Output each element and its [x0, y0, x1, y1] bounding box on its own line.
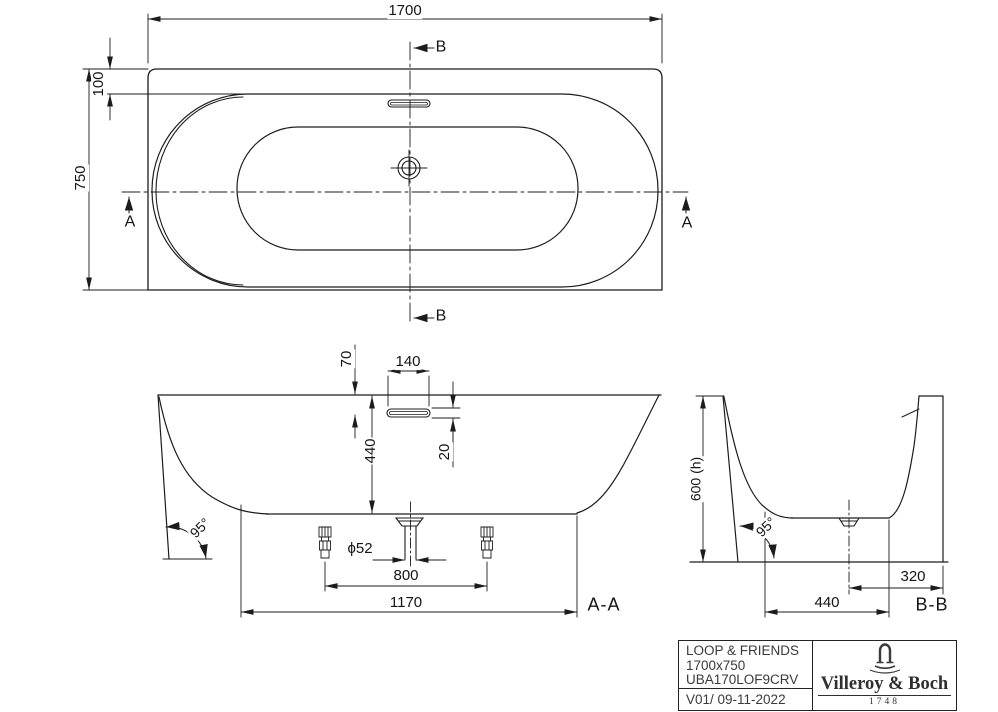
section-title-bb: B-B: [914, 596, 949, 615]
brand-year: 1748: [813, 697, 956, 707]
section-label-a-left: A: [124, 215, 137, 232]
overflow-section-aa: [387, 409, 430, 417]
section-label-b-top: B: [435, 40, 448, 57]
dim-label-100: 100: [91, 70, 107, 97]
title-block-divider: [679, 688, 812, 689]
product-name: LOOP & FRIENDS: [686, 644, 812, 659]
dim-label-600h: 600 (h): [689, 456, 704, 502]
dim-label-20: 20: [437, 443, 453, 462]
dim-label-750: 750: [73, 164, 89, 191]
brand-name: Villeroy & Boch: [818, 675, 951, 696]
dim-label-1170: 1170: [389, 595, 423, 611]
dim-label-1700: 1700: [387, 3, 422, 19]
dim-label-440-bb: 440: [813, 595, 840, 611]
top-view: [83, 14, 688, 322]
article-number: UBA170LOF9CRV: [686, 673, 812, 688]
villeroy-boch-icon: [863, 642, 907, 676]
product-size: 1700x750: [686, 659, 812, 674]
overflow-top-view: [388, 100, 430, 107]
break-tick: [902, 409, 919, 417]
dim-label-440-aa: 440: [363, 437, 379, 464]
title-block: LOOP & FRIENDS 1700x750 UBA170LOF9CRV V0…: [678, 640, 957, 711]
brand-logo: Villeroy & Boch 1748: [813, 641, 956, 710]
title-block-info: LOOP & FRIENDS 1700x750 UBA170LOF9CRV V0…: [679, 641, 813, 710]
section-label-a-right: A: [681, 216, 694, 233]
adjustable-foot-left: [319, 527, 331, 558]
technical-drawing-linework: [0, 0, 998, 712]
section-title-aa: A-A: [586, 596, 621, 615]
drawing-sheet: 1700 750 100 A A B B 70 140 440 20 ϕ52 8…: [0, 0, 998, 712]
section-label-b-bottom: B: [435, 309, 448, 326]
dim-label-70: 70: [339, 350, 355, 369]
dim-label-320: 320: [899, 569, 926, 585]
dim-label-800: 800: [392, 568, 419, 584]
version-date: V01/ 09-11-2022: [679, 692, 812, 707]
dim-label-140: 140: [394, 354, 421, 370]
adjustable-foot-right: [481, 527, 493, 558]
drain-section-aa: [396, 518, 423, 526]
dim-label-drain-diameter: ϕ52: [346, 541, 373, 557]
